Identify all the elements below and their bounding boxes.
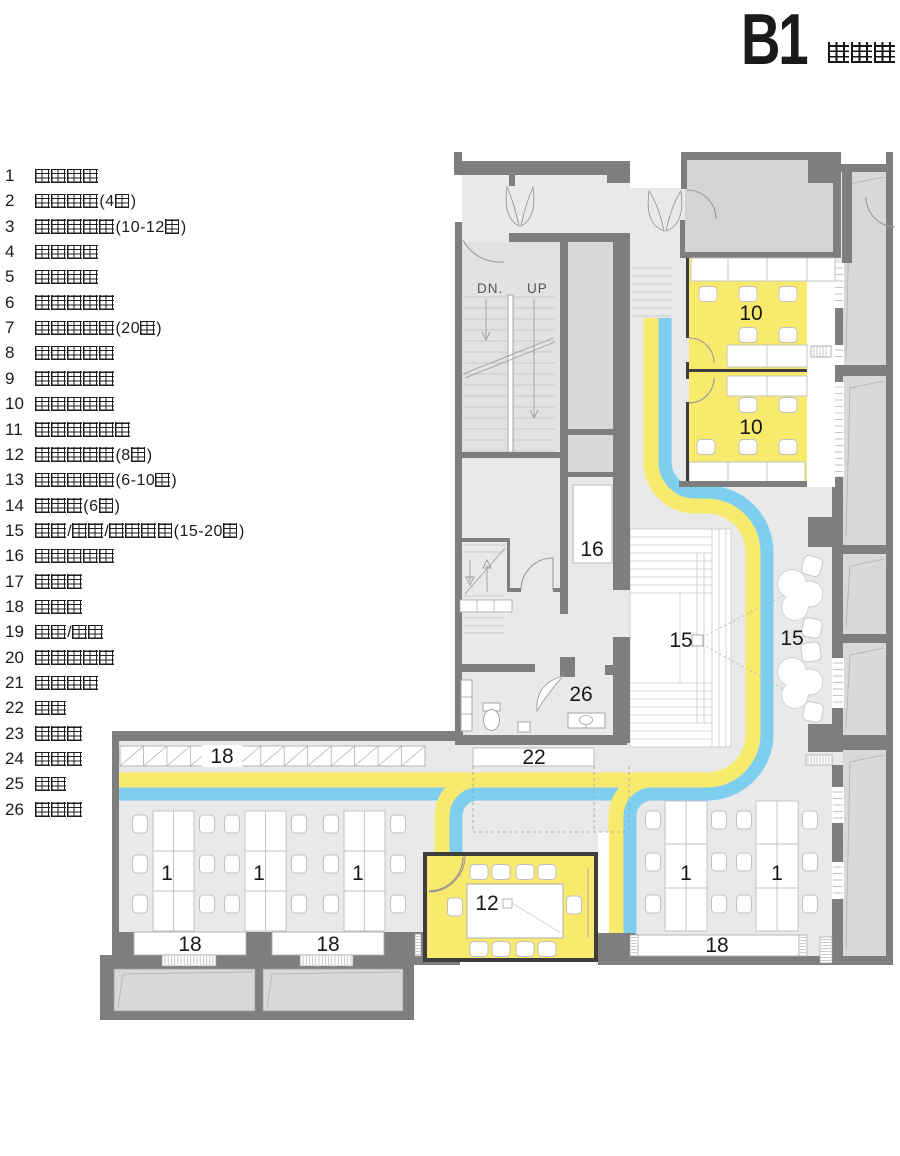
svg-text:1: 1 [771, 862, 783, 885]
svg-text:18: 18 [210, 745, 233, 768]
svg-text:15: 15 [780, 627, 803, 650]
svg-text:DN.: DN. [477, 281, 503, 296]
svg-text:16: 16 [580, 538, 603, 561]
svg-text:1: 1 [352, 862, 364, 885]
svg-text:UP: UP [527, 281, 548, 296]
svg-text:15: 15 [669, 629, 692, 652]
svg-text:26: 26 [569, 683, 592, 706]
svg-text:18: 18 [316, 933, 339, 956]
svg-text:12: 12 [475, 892, 498, 915]
svg-text:1: 1 [253, 862, 265, 885]
svg-text:22: 22 [522, 746, 545, 769]
svg-text:10: 10 [739, 302, 762, 325]
svg-text:1: 1 [161, 862, 173, 885]
svg-text:10: 10 [739, 416, 762, 439]
svg-text:18: 18 [705, 934, 728, 957]
svg-text:18: 18 [178, 933, 201, 956]
svg-text:1: 1 [680, 862, 692, 885]
